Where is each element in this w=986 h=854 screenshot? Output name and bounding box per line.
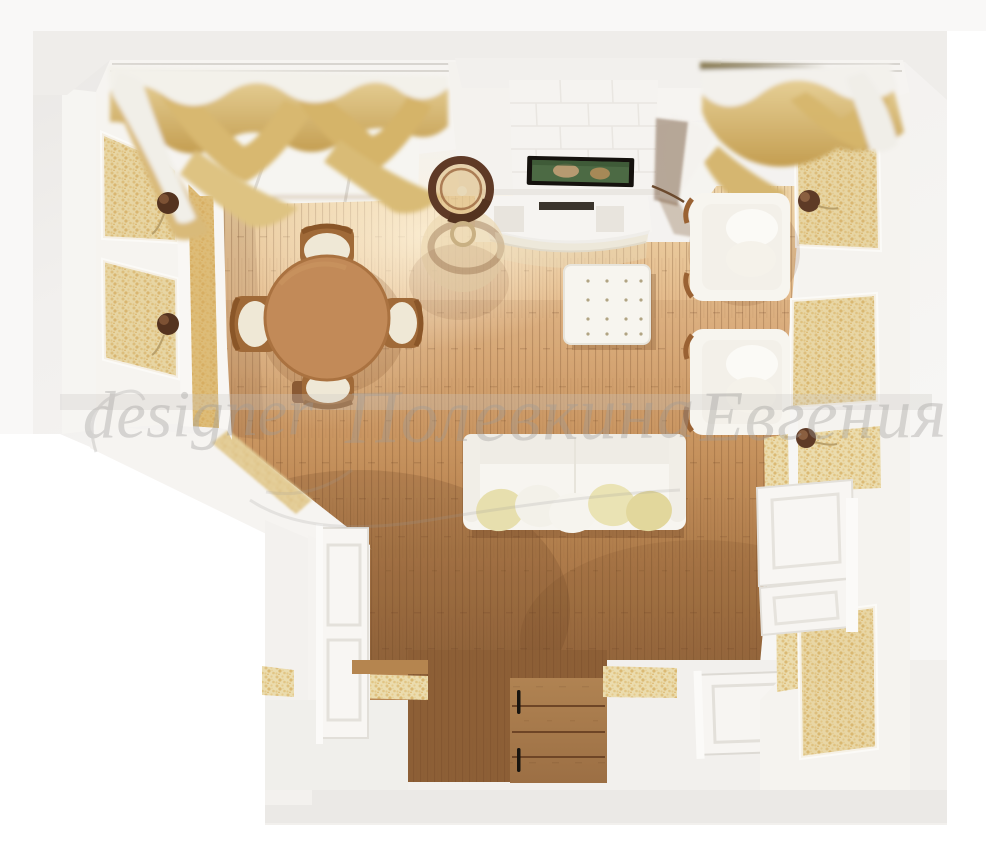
svg-text:Евгения: Евгения [698,373,948,457]
svg-text:designer: designer [82,375,315,453]
svg-text:Полевкина: Полевкина [343,370,696,460]
